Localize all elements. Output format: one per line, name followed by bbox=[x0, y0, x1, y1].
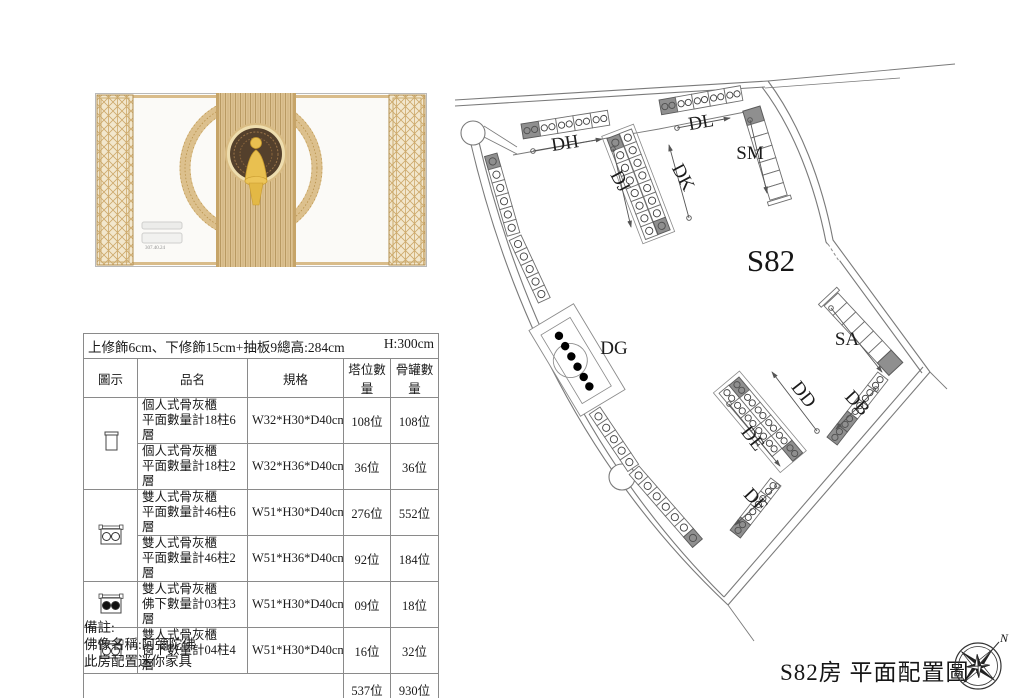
column-header: 骨罐數量 bbox=[391, 359, 439, 398]
table-row: 雙人式骨灰櫃平面數量計46柱6層W51*H30*D40cm276位552位 bbox=[84, 490, 439, 536]
spec-cell: W51*H30*D40cm bbox=[248, 490, 344, 536]
column-circle bbox=[461, 121, 485, 145]
note-line: 備註: bbox=[84, 619, 196, 636]
dimension-label: 307.40.24 bbox=[145, 246, 166, 251]
notes-block: 備註:佛像名稱:阿彌陀佛此房配置迷你家具 bbox=[84, 619, 196, 670]
left-pillar-ornament bbox=[97, 95, 133, 265]
double-cabinet-filled-icon bbox=[98, 591, 124, 615]
item-name-cell: 雙人式骨灰櫃平面數量計46柱6層 bbox=[138, 490, 248, 536]
compass-north-label: N bbox=[999, 631, 1009, 645]
table-row: 個人式骨灰櫃平面數量計18柱2層W32*H36*D40cm36位36位 bbox=[84, 444, 439, 490]
shelf-bar bbox=[142, 233, 182, 243]
shelf-bar bbox=[142, 222, 182, 229]
zone-label-DG: DG bbox=[600, 338, 628, 359]
table-row: 個人式骨灰櫃平面數量計18柱6層W32*H30*D40cm108位108位 bbox=[84, 398, 439, 444]
icon-cell bbox=[84, 398, 138, 490]
column-header: 塔位數量 bbox=[344, 359, 391, 398]
urns-cell: 552位 bbox=[391, 490, 439, 536]
single-cabinet-icon bbox=[98, 430, 124, 454]
spec-cell: W51*H36*D40cm bbox=[248, 536, 344, 582]
compass-rose: N bbox=[946, 630, 1014, 696]
zone-label-SA: SA bbox=[835, 329, 860, 350]
slots-cell: 09位 bbox=[344, 582, 391, 628]
spec-header-band: 上修飾6cm、下修飾15cm+抽板9總高:284cmH:300cm bbox=[84, 334, 439, 359]
slots-cell: 36位 bbox=[344, 444, 391, 490]
note-line: 佛像名稱:阿彌陀佛 bbox=[84, 636, 196, 653]
document-page: 307.40.24 上修飾6cm、下修飾15cm+抽板9總高:284cmH:30… bbox=[0, 0, 1024, 698]
zone-labels: DHDLSMDJDKDGSADDDEDBDF bbox=[550, 110, 874, 516]
slots-cell: 16位 bbox=[344, 628, 391, 674]
room-label: S82 bbox=[747, 243, 795, 278]
item-name-cell: 雙人式骨灰櫃平面數量計46柱2層 bbox=[138, 536, 248, 582]
cabinet-row bbox=[659, 86, 743, 115]
shelf-ladders bbox=[740, 105, 905, 377]
spec-cell: W32*H30*D40cm bbox=[248, 398, 344, 444]
urns-cell: 18位 bbox=[391, 582, 439, 628]
column-header: 品名 bbox=[138, 359, 248, 398]
item-name-cell: 個人式骨灰櫃平面數量計18柱2層 bbox=[138, 444, 248, 490]
icon-cell bbox=[84, 490, 138, 582]
zone-label-DL: DL bbox=[687, 110, 716, 135]
zone-label-DK: DK bbox=[667, 160, 699, 194]
right-pillar-ornament bbox=[389, 95, 425, 265]
total-urns: 930位 bbox=[391, 674, 439, 698]
cabinet-row bbox=[509, 235, 550, 303]
slots-cell: 276位 bbox=[344, 490, 391, 536]
note-line: 此房配置迷你家具 bbox=[84, 653, 196, 670]
double-cabinet-open-icon bbox=[98, 522, 124, 546]
cabinet-row bbox=[485, 153, 520, 236]
zone-label-DD: DD bbox=[787, 377, 820, 412]
altar-render-image: 307.40.24 bbox=[95, 93, 427, 267]
drawing-title: S82房 平面配置圖 bbox=[780, 653, 970, 687]
spec-cell: W51*H30*D40cm bbox=[248, 582, 344, 628]
slots-cell: 108位 bbox=[344, 398, 391, 444]
column-header: 圖示 bbox=[84, 359, 138, 398]
height-note: H:300cm bbox=[384, 336, 434, 352]
total-row: 537位930位 bbox=[84, 674, 439, 698]
cabinet-row bbox=[629, 466, 702, 547]
item-name-cell: 個人式骨灰櫃平面數量計18柱6層 bbox=[138, 398, 248, 444]
column-header: 規格 bbox=[248, 359, 344, 398]
spec-header-line: 上修飾6cm、下修飾15cm+抽板9總高:284cm bbox=[88, 336, 345, 356]
urns-cell: 108位 bbox=[391, 398, 439, 444]
column-header-row: 圖示品名規格塔位數量骨罐數量 bbox=[84, 359, 439, 398]
slots-cell: 92位 bbox=[344, 536, 391, 582]
spec-cell: W51*H30*D40cm bbox=[248, 628, 344, 674]
zone-label-DH: DH bbox=[550, 131, 581, 156]
floor-plan: DHDLSMDJDKDGSADDDEDBDF S82 bbox=[450, 55, 966, 647]
urns-cell: 32位 bbox=[391, 628, 439, 674]
zone-label-SM: SM bbox=[736, 143, 764, 164]
table-row: 雙人式骨灰櫃平面數量計46柱2層W51*H36*D40cm92位184位 bbox=[84, 536, 439, 582]
spec-cell: W32*H36*D40cm bbox=[248, 444, 344, 490]
urns-cell: 36位 bbox=[391, 444, 439, 490]
total-slots: 537位 bbox=[344, 674, 391, 698]
altar-dg bbox=[529, 304, 625, 416]
urns-cell: 184位 bbox=[391, 536, 439, 582]
